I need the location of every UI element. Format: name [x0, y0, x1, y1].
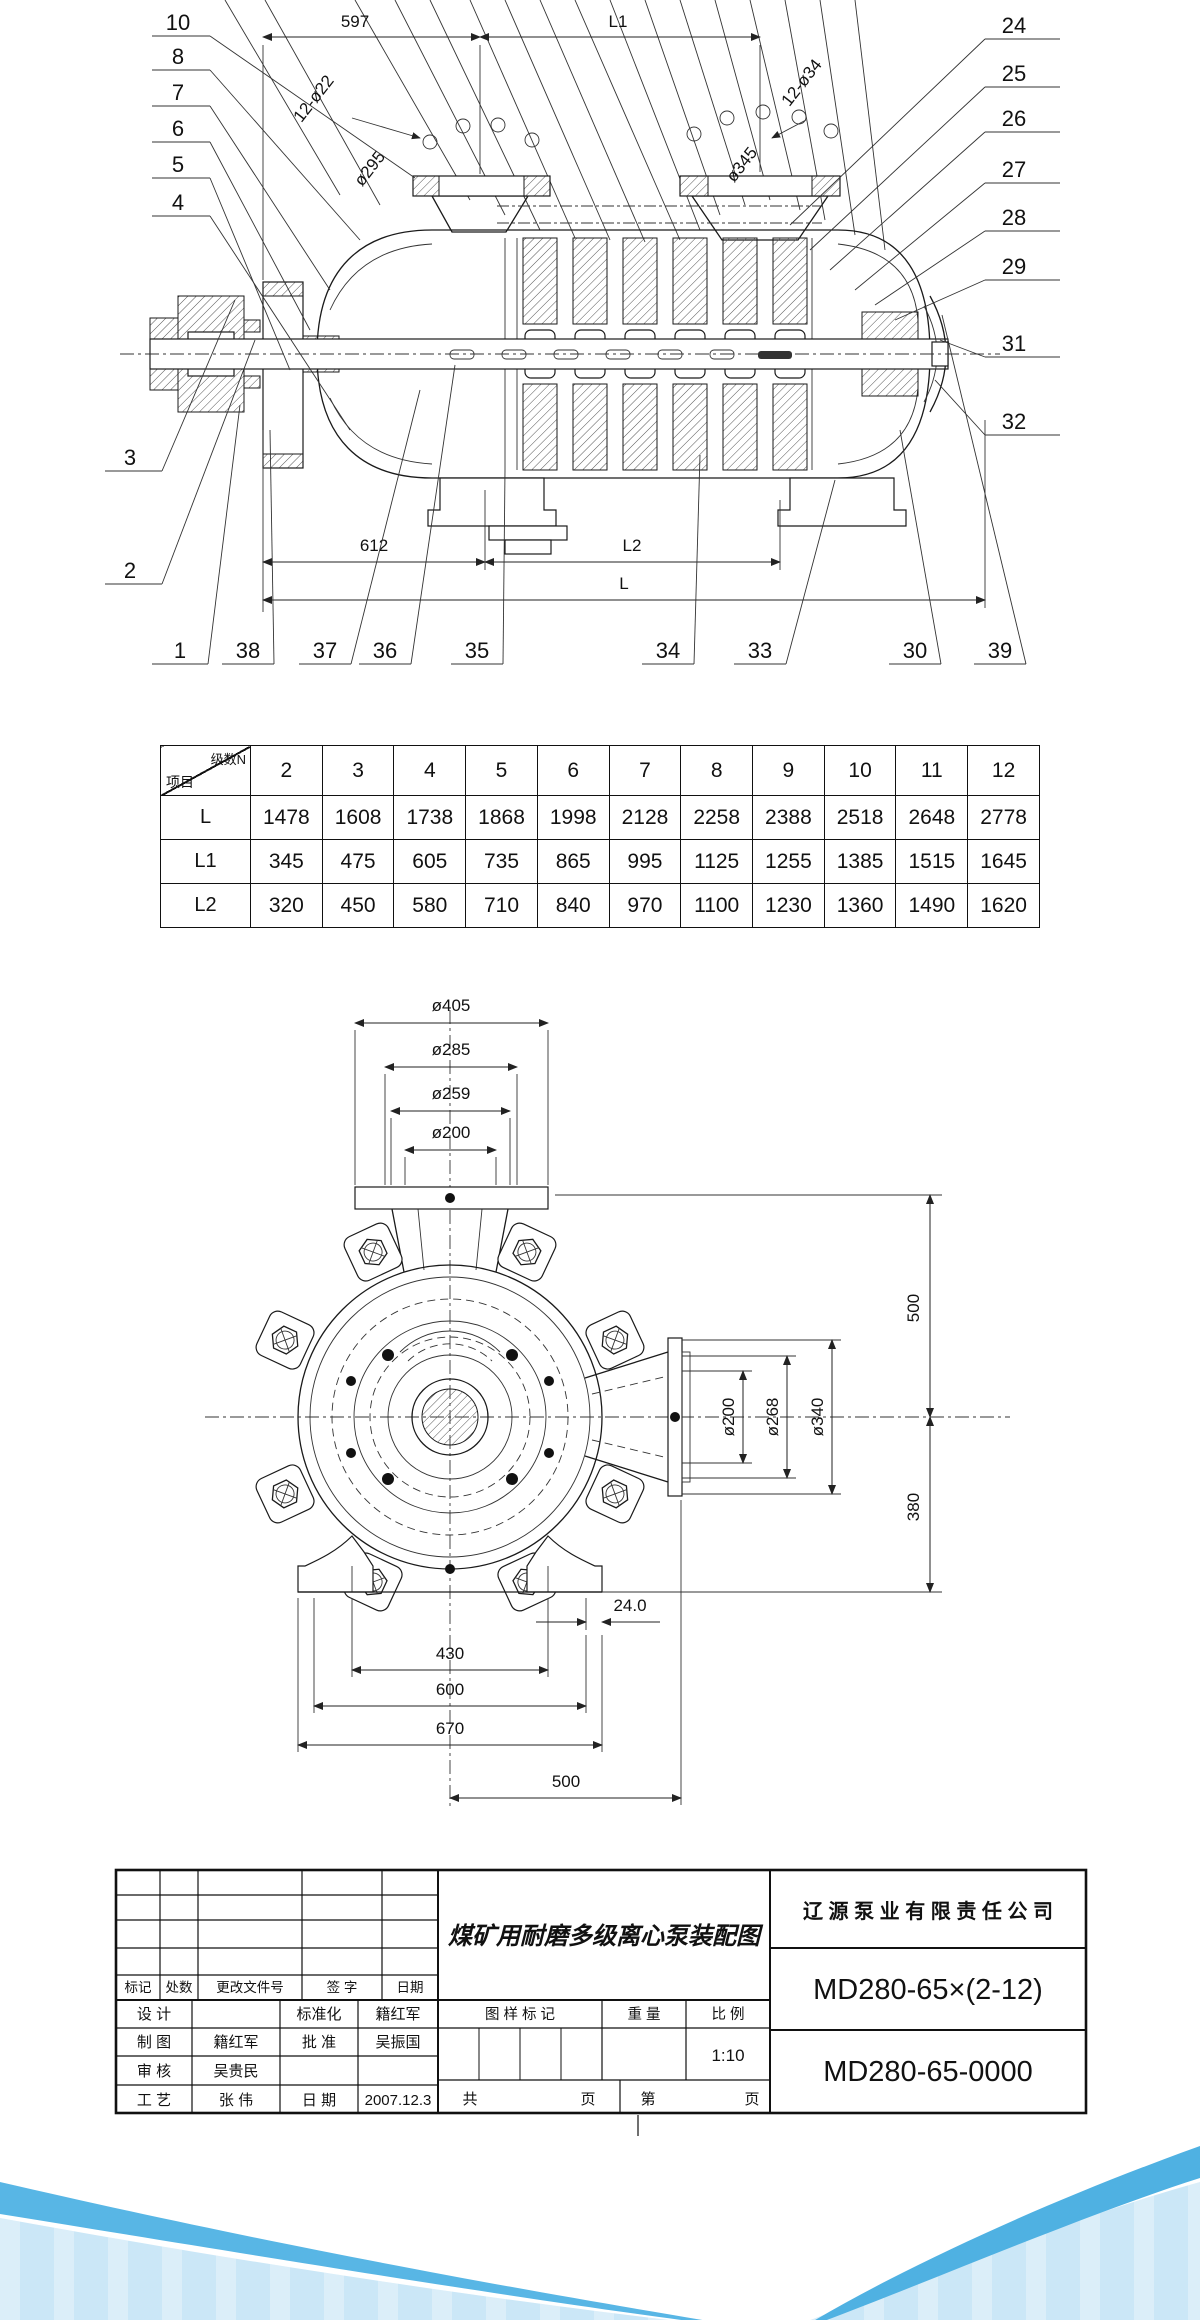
dim-d259: ø259 [432, 1084, 471, 1103]
sig-value: 吴贵民 [213, 2063, 258, 2080]
callout-33: 33 [748, 638, 772, 663]
table-cell: 1608 [322, 796, 394, 840]
sig-label-review: 审 核 [137, 2063, 171, 2080]
dim-d285: ø285 [432, 1040, 471, 1059]
dim-l2: L2 [623, 536, 642, 555]
callout-29: 29 [1002, 254, 1026, 279]
drawing-number: MD280-65-0000 [823, 2056, 1033, 2088]
footer-wave [0, 2100, 1200, 2320]
rev-header-signature: 签 字 [327, 1979, 358, 1995]
table-cell: 2518 [824, 796, 896, 840]
pump-section-drawing: 597 L1 12-ø22 ø295 ø345 12-ø34 612 L2 L … [0, 0, 1200, 712]
callout-5: 5 [172, 152, 184, 177]
callout-6: 6 [172, 116, 184, 141]
table-cell: 2778 [968, 796, 1040, 840]
dim-670: 670 [436, 1719, 464, 1738]
dim-l: L [619, 574, 628, 593]
dim-597: 597 [341, 12, 369, 31]
row-label-L2: L2 [161, 884, 251, 928]
table-cell: 735 [466, 840, 538, 884]
stage-count-header: 7 [609, 746, 681, 796]
table-cell: 1230 [753, 884, 825, 928]
discharge-neck [692, 196, 828, 240]
table-cell: 1868 [466, 796, 538, 840]
stage-count-header: 5 [466, 746, 538, 796]
dim-d405: ø405 [432, 996, 471, 1015]
dim-500-bottom: 500 [552, 1772, 580, 1791]
dim-d340: ø340 [808, 1398, 827, 1437]
stage-count-header: 9 [753, 746, 825, 796]
callout-8: 8 [172, 44, 184, 69]
dim-d200-flange: ø200 [719, 1398, 738, 1437]
end-view-foot-right [527, 1536, 602, 1592]
dim-d295: ø295 [350, 147, 389, 189]
stage-count-header: 12 [968, 746, 1040, 796]
callout-2: 2 [124, 558, 136, 583]
table-cell: 1360 [824, 884, 896, 928]
table-cell: 580 [394, 884, 466, 928]
callout-1: 1 [174, 638, 186, 663]
callout-30: 30 [903, 638, 927, 663]
company-name: 辽 源 泵 业 有 限 责 任 公 司 [803, 1899, 1053, 1923]
callout-24: 24 [1002, 13, 1026, 38]
row-label-L: L [161, 796, 251, 840]
rev-header-count: 处数 [166, 1980, 193, 1995]
pump-cross-section [120, 105, 1000, 554]
callout-31: 31 [1002, 331, 1026, 356]
pump-foot-right [778, 478, 906, 526]
table-cell: 320 [251, 884, 323, 928]
callout-35: 35 [465, 638, 489, 663]
table-cell: 1100 [681, 884, 753, 928]
table-cell: 450 [322, 884, 394, 928]
stage-dimension-table: 级数N 项目 2 3 4 5 6 7 8 9 10 11 12 L 1478 1… [160, 745, 1040, 928]
table-cell: 475 [322, 840, 394, 884]
callout-34: 34 [656, 638, 680, 663]
callout-27: 27 [1002, 157, 1026, 182]
table-cell: 1125 [681, 840, 753, 884]
table-cell: 1385 [824, 840, 896, 884]
scale-header: 比 例 [711, 2006, 744, 2023]
table-cell: 1515 [896, 840, 968, 884]
table-cell: 2258 [681, 796, 753, 840]
callout-10: 10 [166, 10, 190, 35]
suction-bolt-holes [423, 118, 539, 149]
table-cell: 995 [609, 840, 681, 884]
callout-38: 38 [236, 638, 260, 663]
dim-24: 24.0 [613, 1596, 646, 1615]
drawing-sheet: { "page": { "background": "#ffffff", "wa… [0, 0, 1200, 2320]
drawing-title: 煤矿用耐磨多级离心泵装配图 [448, 1923, 764, 1950]
table-cell: 345 [251, 840, 323, 884]
end-view-body [205, 1010, 1010, 1810]
table-cell: 2388 [753, 796, 825, 840]
weight-header: 重 量 [627, 2006, 660, 2023]
table-cell: 2128 [609, 796, 681, 840]
callout-39: 39 [988, 638, 1012, 663]
callout-36: 36 [373, 638, 397, 663]
table-cell: 840 [537, 884, 609, 928]
table-cell: 865 [537, 840, 609, 884]
dim-612: 612 [360, 536, 388, 555]
bearing-bracket [263, 282, 303, 468]
callout-28: 28 [1002, 205, 1026, 230]
table-cell: 1478 [251, 796, 323, 840]
dim-d200-top: ø200 [432, 1123, 471, 1142]
stage-count-header: 10 [824, 746, 896, 796]
pump-end-view-drawing: ø405 ø285 ø259 ø200 ø200 ø268 ø340 500 3… [0, 980, 1200, 1840]
callout-26: 26 [1002, 106, 1026, 131]
row-label-L1: L1 [161, 840, 251, 884]
pump-foot-left [428, 478, 556, 526]
callout-32: 32 [1002, 409, 1026, 434]
sig-value: 吴振国 [375, 2034, 420, 2051]
table-cell: 710 [466, 884, 538, 928]
stage-count-header: 4 [394, 746, 466, 796]
stage-count-header: 11 [896, 746, 968, 796]
table-cell: 1998 [537, 796, 609, 840]
dim-d268: ø268 [763, 1398, 782, 1437]
dim-500-right: 500 [904, 1294, 923, 1322]
callout-4: 4 [172, 190, 184, 215]
sig-value: 籍红军 [375, 2006, 420, 2023]
dim-430: 430 [436, 1644, 464, 1663]
dim-380-right: 380 [904, 1493, 923, 1521]
table-cell: 605 [394, 840, 466, 884]
table-cell: 1645 [968, 840, 1040, 884]
dim-600: 600 [436, 1680, 464, 1699]
dim-l1: L1 [609, 12, 628, 31]
table-cell: 1620 [968, 884, 1040, 928]
table-corner-cell: 级数N 项目 [161, 746, 251, 796]
sig-label-standardization: 标准化 [296, 2006, 341, 2023]
shaft-end [422, 1389, 478, 1445]
callout-3: 3 [124, 445, 136, 470]
callout-37: 37 [313, 638, 337, 663]
corner-label-item: 项目 [166, 772, 194, 792]
dim-bolt-circle-right: 12-ø34 [778, 56, 826, 110]
drain-flange [489, 526, 567, 540]
sig-label-approved: 批 准 [302, 2034, 336, 2051]
suction-neck [432, 196, 528, 232]
rev-header-mark: 标记 [125, 1980, 152, 1995]
table-cell: 970 [609, 884, 681, 928]
scale-value: 1:10 [711, 2046, 744, 2065]
stage-count-header: 8 [681, 746, 753, 796]
stage-count-header: 2 [251, 746, 323, 796]
stamp-header: 图 样 标 记 [485, 2006, 555, 2023]
sig-value: 籍红军 [213, 2034, 258, 2051]
sig-label-design: 设 计 [137, 2006, 171, 2023]
corner-label-stages: 级数N [211, 749, 246, 768]
callout-7: 7 [172, 80, 184, 105]
end-view-dimensions: ø405 ø285 ø259 ø200 ø200 ø268 ø340 500 3… [298, 996, 942, 1805]
stage-count-header: 3 [322, 746, 394, 796]
end-view-foot-left [298, 1536, 373, 1592]
table-cell: 1490 [896, 884, 968, 928]
table-cell: 2648 [896, 796, 968, 840]
table-cell: 1738 [394, 796, 466, 840]
rev-header-date: 日期 [397, 1980, 424, 1995]
sig-label-drafting: 制 图 [137, 2034, 171, 2051]
pump-model: MD280-65×(2-12) [813, 1974, 1043, 2006]
rev-header-docno: 更改文件号 [216, 1980, 284, 1995]
callout-25: 25 [1002, 61, 1026, 86]
discharge-bolt-holes [687, 105, 838, 141]
table-cell: 1255 [753, 840, 825, 884]
stage-count-header: 6 [537, 746, 609, 796]
